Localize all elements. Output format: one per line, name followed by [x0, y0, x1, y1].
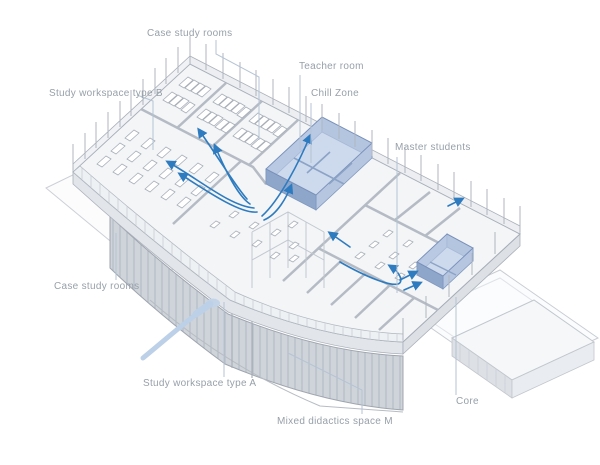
label-study-workspace-type-b: Study workspace type B [49, 88, 163, 99]
label-case-study-rooms-top: Case study rooms [147, 28, 232, 39]
label-case-study-rooms-left: Case study rooms [54, 281, 139, 292]
label-mixed-didactics-space-m: Mixed didactics space M [277, 416, 393, 427]
label-teacher-room: Teacher room [299, 61, 364, 72]
label-chill-zone: Chill Zone [311, 88, 359, 99]
label-study-workspace-type-a: Study workspace type A [143, 378, 256, 389]
label-core: Core [456, 396, 479, 407]
label-master-students: Master students [395, 142, 471, 153]
diagram-canvas: Case study rooms Study workspace type B … [0, 0, 600, 465]
